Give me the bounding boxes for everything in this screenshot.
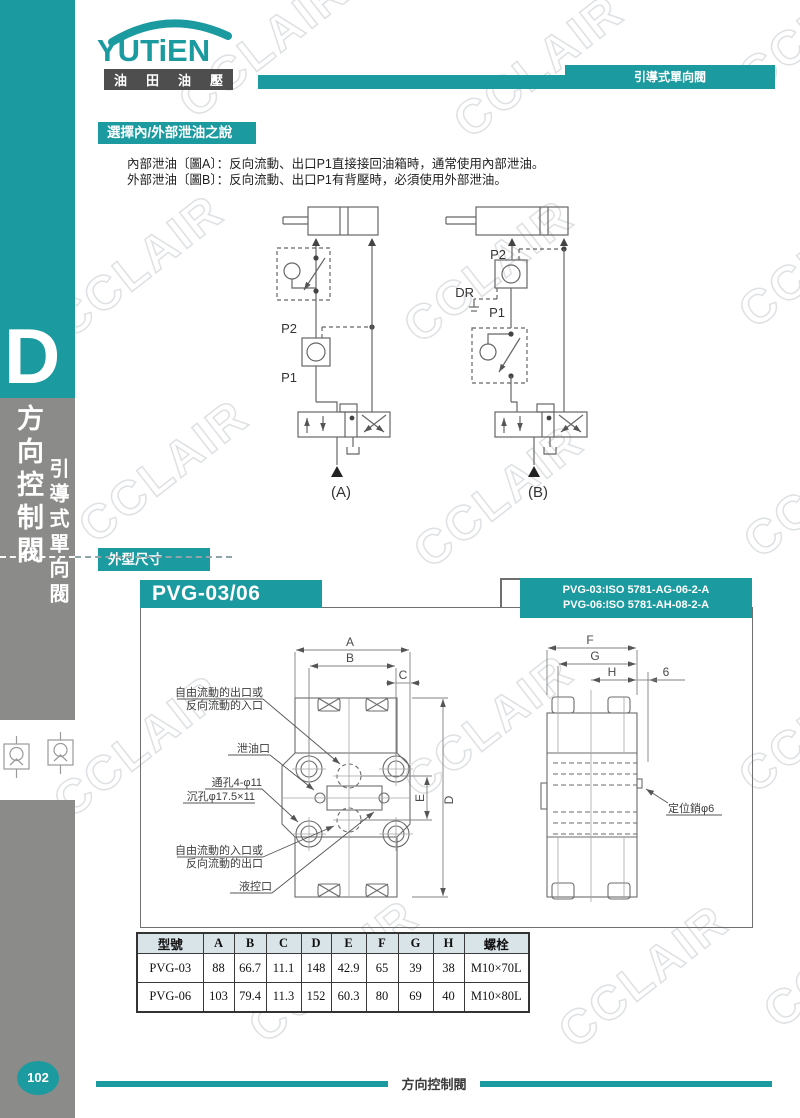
table-cell: PVG-06 bbox=[137, 983, 203, 1012]
dim-c-label: C bbox=[399, 668, 408, 682]
dowel-pin-label: 定位銷φ6 bbox=[668, 801, 714, 815]
col-header-e: E bbox=[331, 933, 366, 954]
col-header-d: D bbox=[301, 933, 331, 954]
cylinder-a bbox=[283, 207, 378, 235]
dimensions-section-title: 外型尺寸 bbox=[98, 548, 210, 571]
dimension-table: 型號 A B C D E F G H 螺栓 PVG-03 88 66.7 11.… bbox=[136, 932, 530, 1013]
dim-d-label: D bbox=[442, 795, 456, 804]
col-header-h: H bbox=[433, 933, 464, 954]
svg-text:CCLAIR: CCLAIR bbox=[734, 404, 800, 568]
dim-g-label: G bbox=[590, 649, 599, 663]
counterbore-label: 沉孔φ17.5×11 bbox=[187, 790, 255, 803]
col-header-b: B bbox=[234, 933, 266, 954]
brand-logo: YUTiEN bbox=[97, 33, 257, 69]
circuit-b-p1-label: P1 bbox=[489, 305, 505, 320]
col-header-c: C bbox=[266, 933, 301, 954]
drain-symbol bbox=[469, 299, 479, 311]
cylinder-b bbox=[446, 207, 568, 235]
col-header-model: 型號 bbox=[137, 933, 203, 954]
front-view bbox=[282, 698, 413, 897]
table-row: PVG-03 88 66.7 11.1 148 42.9 65 39 38 M1… bbox=[137, 954, 529, 983]
drain-port-label: 泄油口 bbox=[237, 741, 270, 755]
circuit-b-p2-label: P2 bbox=[490, 247, 506, 262]
in-port-label-1: 自由流動的入口或 bbox=[175, 843, 263, 857]
iso-code-2: PVG-06:ISO 5781-AH-08-2-A bbox=[520, 598, 752, 613]
circuit-a-p2-label: P2 bbox=[281, 321, 297, 336]
check-valve-a bbox=[302, 338, 330, 366]
check-valve-b bbox=[495, 260, 527, 288]
dowel-pin-callout: 定位銷φ6 bbox=[646, 789, 722, 815]
directional-valve-a bbox=[298, 404, 390, 477]
circuit-diagram-svg: P2 P1 P2 DR P1 (A) (B) bbox=[230, 195, 660, 505]
header-tab-label: 引導式單向閥 bbox=[565, 65, 775, 89]
col-header-f: F bbox=[366, 933, 398, 954]
footer-label: 方向控制閥 bbox=[388, 1074, 480, 1093]
intro-line-2: 外部泄油〔圖B〕：反向流動、出口P1有背壓時，必須使用外部泄油。 bbox=[127, 169, 747, 188]
front-view-dimensions bbox=[295, 650, 448, 897]
col-header-g: G bbox=[398, 933, 433, 954]
circuit-a-p1-label: P1 bbox=[281, 370, 297, 385]
out-port-label-2: 反向流動的入口 bbox=[186, 698, 263, 712]
dim-f-label: F bbox=[586, 633, 593, 647]
sidebar-subcategory-label: 引導式單向閥 bbox=[43, 458, 72, 608]
pilot-port-label: 液控口 bbox=[239, 879, 272, 893]
frame-step-line-h bbox=[500, 578, 522, 580]
in-port-label-2: 反向流動的出口 bbox=[186, 856, 263, 870]
dim-h-label: H bbox=[608, 665, 617, 679]
dim-6-label: 6 bbox=[663, 665, 670, 679]
footer-rule-left bbox=[96, 1081, 388, 1087]
pilot-check-valve-b bbox=[472, 328, 527, 383]
table-cell: PVG-03 bbox=[137, 954, 203, 983]
dim-a-label: A bbox=[346, 635, 354, 649]
col-header-bolt: 螺栓 bbox=[464, 933, 529, 954]
intro-section-title: 選擇內/外部泄油之說明： bbox=[98, 122, 256, 144]
svg-text:CCLAIR: CCLAIR bbox=[754, 874, 800, 1038]
bolt-holes bbox=[296, 756, 409, 847]
svg-text:CCLAIR: CCLAIR bbox=[729, 174, 800, 338]
page-number-badge: 102 bbox=[17, 1061, 59, 1095]
directional-valve-b bbox=[495, 404, 587, 477]
pilot-check-valve-a bbox=[277, 248, 330, 300]
table-header-row: 型號 A B C D E F G H 螺栓 bbox=[137, 933, 529, 954]
footer-rule-right bbox=[480, 1081, 772, 1087]
out-port-label-1: 自由流動的出口或 bbox=[175, 685, 263, 699]
frame-step-line-v bbox=[500, 578, 502, 608]
model-header: PVG-03/06 bbox=[140, 580, 322, 608]
circuit-a-label: (A) bbox=[331, 484, 351, 501]
circuit-b-label: (B) bbox=[528, 484, 548, 501]
iso-code-1: PVG-03:ISO 5781-AG-06-2-A bbox=[520, 583, 752, 598]
logo-subtitle: 油 田 油 壓 bbox=[104, 69, 233, 90]
through-hole-label: 通孔4-φ11 bbox=[212, 776, 262, 789]
catalog-page: CCLAIR CCLAIR CCLAIR CCLAIR CCLAIR CCLAI… bbox=[0, 0, 800, 1118]
dim-e-label: E bbox=[413, 794, 427, 802]
section-dashed-rule bbox=[0, 556, 75, 558]
circuit-b-dr-label: DR bbox=[455, 285, 474, 300]
section-dashed-rule-2 bbox=[75, 556, 232, 558]
outline-drawing-svg: A B C D E 自由流動的出口或 反向流動的入口 泄油口 通孔4-φ11 沉… bbox=[140, 607, 753, 928]
col-header-a: A bbox=[203, 933, 234, 954]
iso-codes: PVG-03:ISO 5781-AG-06-2-A PVG-06:ISO 578… bbox=[520, 578, 752, 618]
table-row: PVG-06 103 79.4 11.3 152 60.3 80 69 40 M… bbox=[137, 983, 529, 1012]
side-view bbox=[541, 690, 642, 902]
check-valve-icons bbox=[0, 722, 80, 794]
logo-subtitle-char: 油 bbox=[114, 70, 127, 89]
dim-b-label: B bbox=[346, 651, 354, 665]
sidebar-section-letter: D bbox=[4, 316, 79, 396]
